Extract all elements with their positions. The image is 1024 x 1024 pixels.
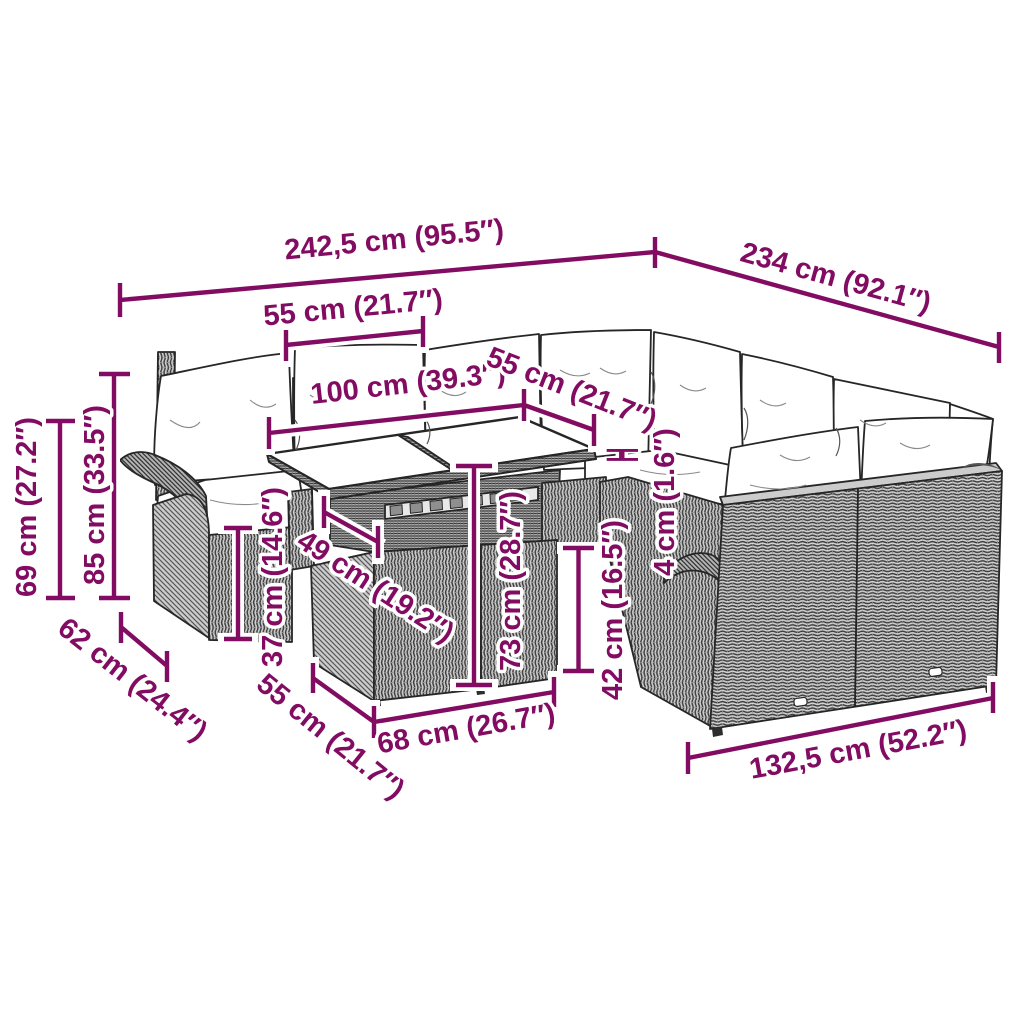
svg-text:69 cm (27.2″): 69 cm (27.2″): [11, 417, 43, 597]
svg-text:73 cm (28.7″): 73 cm (28.7″): [495, 491, 527, 671]
svg-text:85 cm (33.5″): 85 cm (33.5″): [79, 405, 111, 585]
svg-text:42 cm (16.5″): 42 cm (16.5″): [597, 520, 629, 700]
svg-text:H: H: [598, 448, 648, 463]
svg-text:242,5 cm (95.5″): 242,5 cm (95.5″): [283, 214, 505, 267]
svg-text:37 cm (14.6″): 37 cm (14.6″): [257, 487, 289, 667]
svg-text:4 cm (1.6″): 4 cm (1.6″): [649, 428, 681, 576]
